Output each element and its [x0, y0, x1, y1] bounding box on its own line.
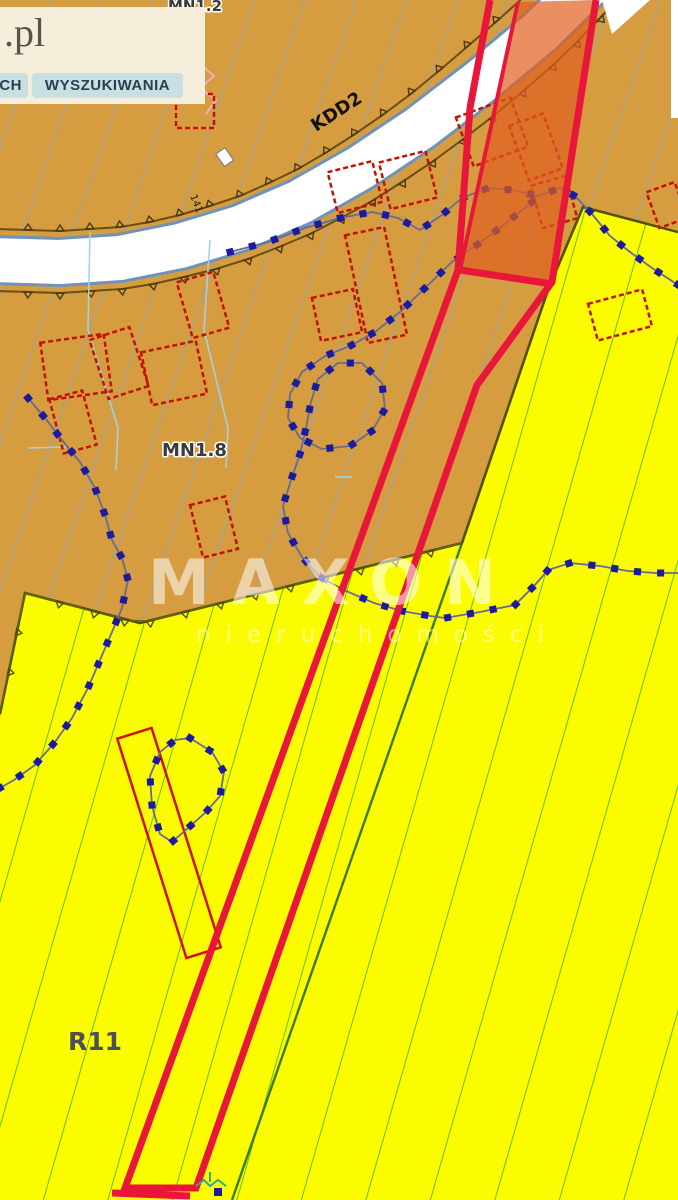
watermark: MAXON nieruchomości [148, 546, 559, 648]
plan-viewer: 141 MN1.2 KDD2 MN1.8 R11 [0, 0, 678, 1200]
label-mn18: MN1.8 [162, 440, 227, 461]
site-header-panel: .pl CH WYSZUKIWANIA [0, 7, 205, 104]
site-logo[interactable]: .pl [4, 9, 45, 56]
tab-wyszukiwania[interactable]: WYSZUKIWANIA [32, 73, 183, 98]
zoning-map: 141 MN1.2 KDD2 MN1.8 R11 [0, 0, 678, 1200]
tab-truncated[interactable]: CH [0, 73, 28, 98]
tab-row: CH WYSZUKIWANIA [0, 73, 205, 99]
watermark-subtitle: nieruchomości [196, 622, 559, 648]
edge-strip [671, 0, 678, 118]
label-r11: R11 [68, 1027, 122, 1056]
watermark-brand: MAXON [148, 546, 518, 619]
